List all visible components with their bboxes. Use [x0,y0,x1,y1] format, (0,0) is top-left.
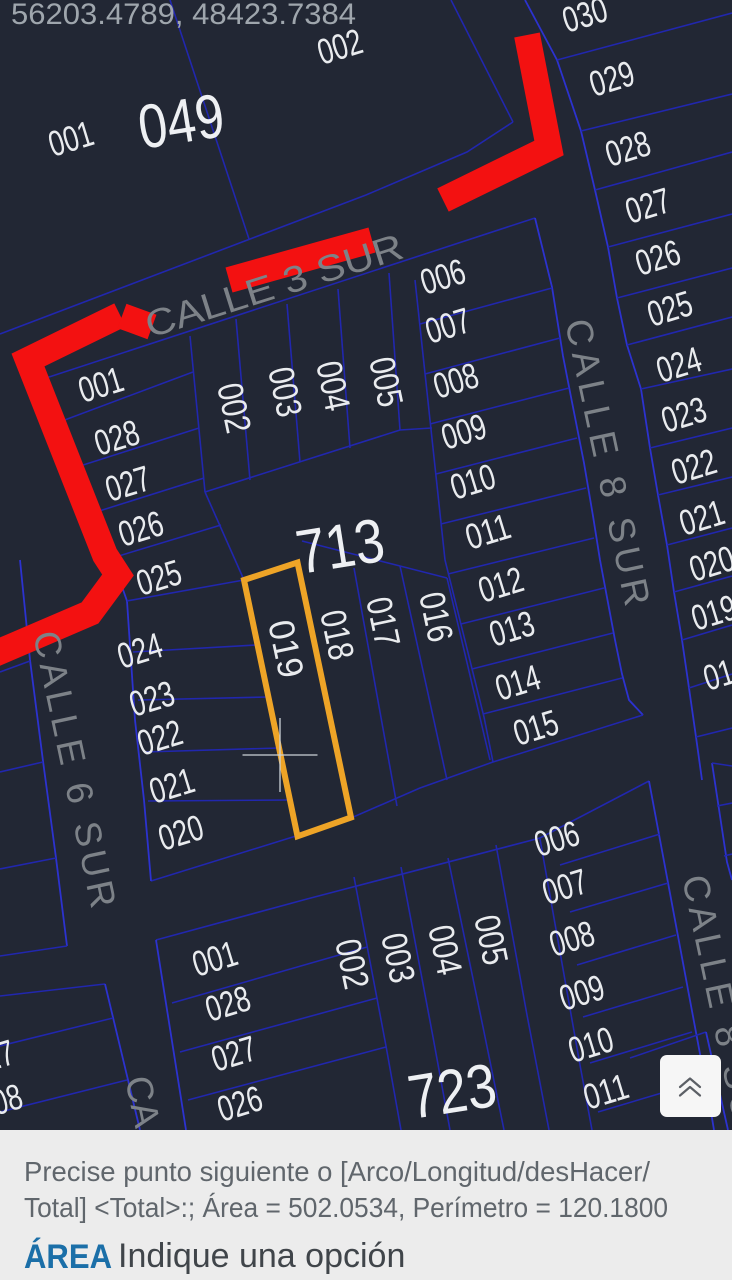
svg-text:049: 049 [133,81,229,163]
svg-text:Total] <Total>:; Área = 502.05: Total] <Total>:; Área = 502.0534, Períme… [24,1192,668,1223]
svg-text:56203.4789, 48423.7384: 56203.4789, 48423.7384 [11,0,356,31]
svg-text:723: 723 [403,1051,501,1133]
svg-text:ÁREA: ÁREA [24,1238,112,1276]
svg-text:713: 713 [291,506,389,588]
svg-text:Indique una opción: Indique una opción [118,1237,405,1275]
svg-text:Precise punto siguiente o [Arc: Precise punto siguiente o [Arco/Longitud… [24,1156,650,1187]
